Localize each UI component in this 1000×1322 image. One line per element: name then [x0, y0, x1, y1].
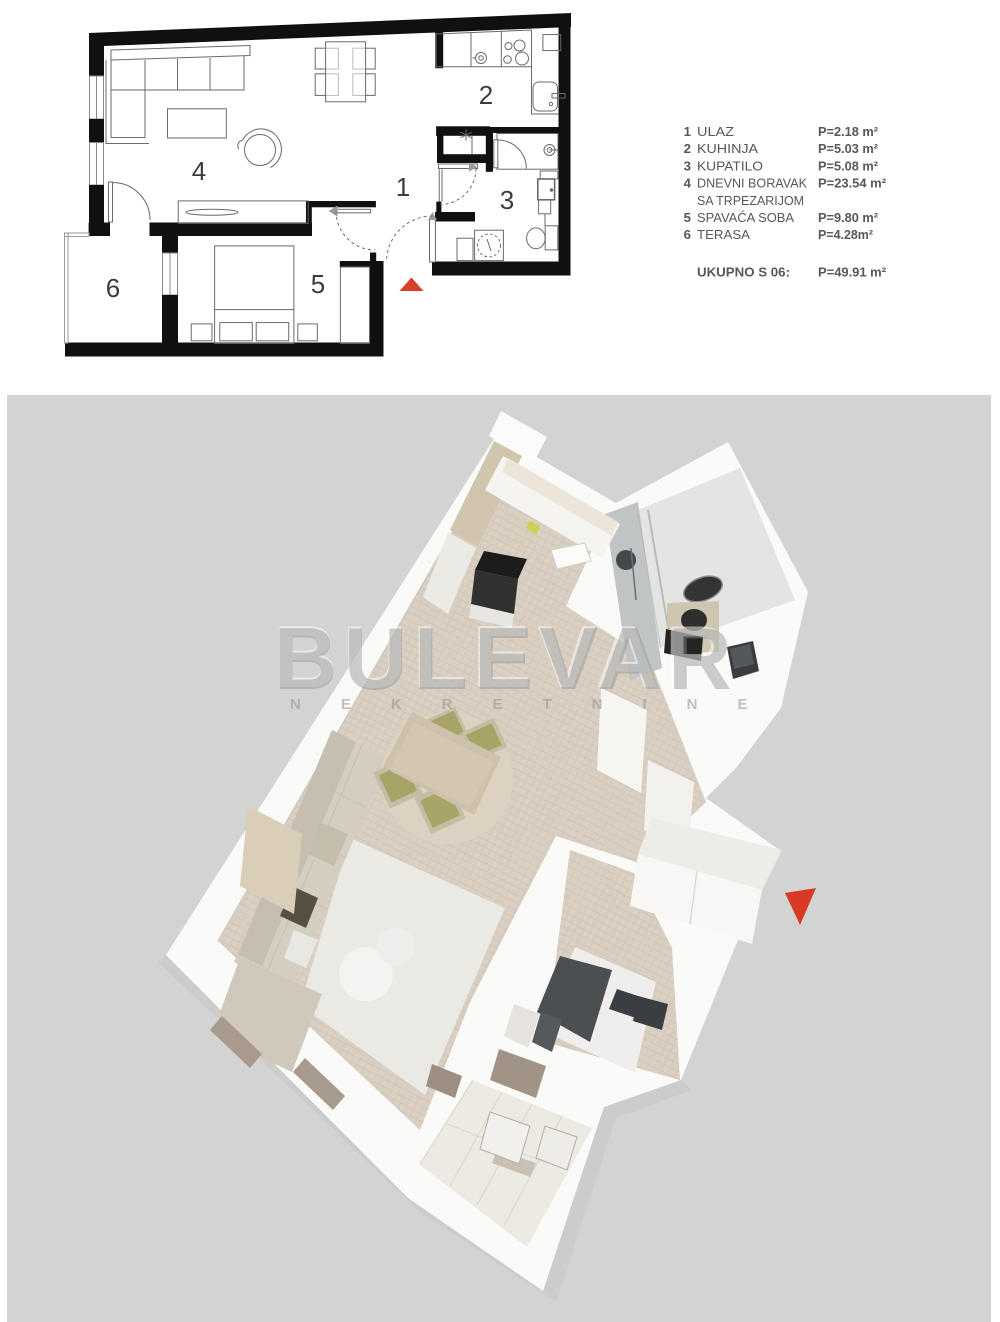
svg-text:5: 5	[684, 210, 691, 225]
svg-text:P=4.28m²: P=4.28m²	[818, 227, 874, 242]
svg-text:4: 4	[192, 156, 206, 186]
svg-text:BULEVAR: BULEVAR	[274, 609, 738, 708]
svg-text:P=9.80 m²: P=9.80 m²	[818, 210, 879, 225]
svg-text:KUPATILO: KUPATILO	[697, 158, 763, 173]
svg-text:TERASA: TERASA	[697, 227, 750, 242]
svg-text:ULAZ: ULAZ	[697, 124, 734, 139]
svg-text:P=5.08 m²: P=5.08 m²	[818, 158, 879, 173]
svg-text:KUHINJA: KUHINJA	[697, 141, 758, 156]
svg-text:SA TRPEZARIJOM: SA TRPEZARIJOM	[697, 193, 804, 208]
svg-text:P=23.54 m²: P=23.54 m²	[818, 176, 887, 191]
svg-text:SPAVAĆA SOBA: SPAVAĆA SOBA	[697, 210, 794, 225]
svg-text:P=5.03 m²: P=5.03 m²	[818, 141, 879, 156]
svg-text:NEKRETNINE: NEKRETNINE	[290, 696, 788, 713]
svg-text:1: 1	[396, 172, 410, 202]
svg-text:2: 2	[479, 80, 493, 110]
svg-text:2: 2	[684, 141, 691, 156]
svg-text:UKUPNO S 06:: UKUPNO S 06:	[697, 265, 790, 280]
svg-text:4: 4	[684, 176, 692, 191]
svg-text:DNEVNI BORAVAK: DNEVNI BORAVAK	[697, 176, 807, 191]
svg-text:6: 6	[684, 227, 691, 242]
svg-text:5: 5	[311, 269, 325, 299]
svg-text:6: 6	[106, 273, 120, 303]
svg-text:P=2.18 m²: P=2.18 m²	[818, 124, 879, 139]
svg-text:3: 3	[500, 185, 514, 215]
svg-text:3: 3	[684, 158, 691, 173]
svg-text:1: 1	[684, 124, 691, 139]
svg-text:P=49.91 m²: P=49.91 m²	[818, 265, 887, 280]
